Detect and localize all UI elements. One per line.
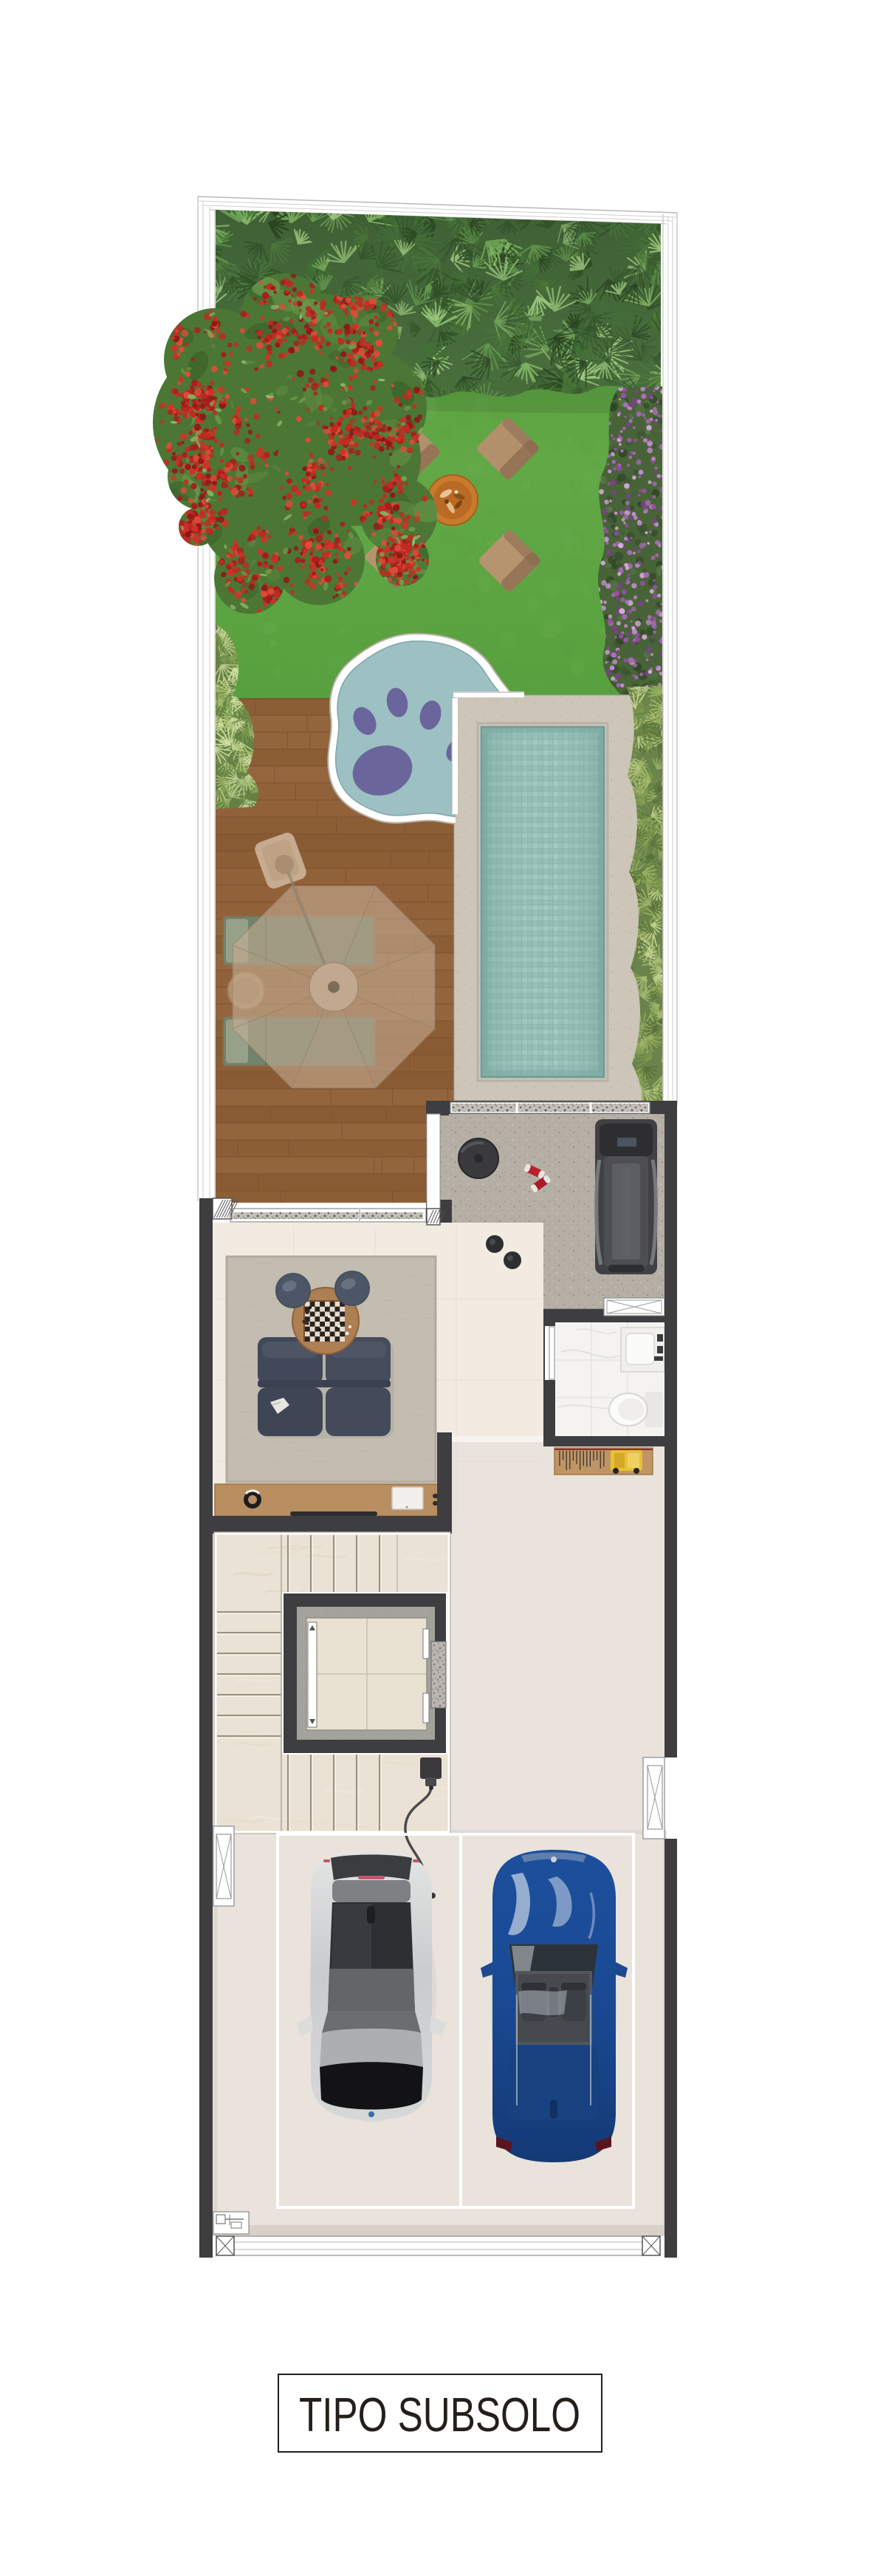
svg-text:TIPO SUBSOLO: TIPO SUBSOLO [299, 2388, 580, 2442]
